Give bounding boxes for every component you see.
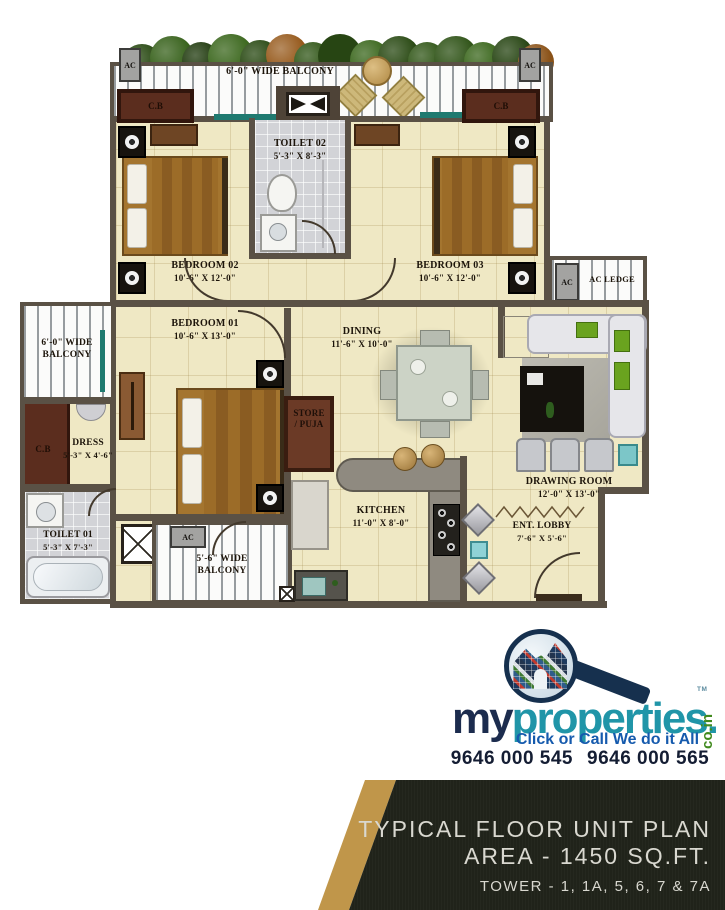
logo-magnifier-icon (440, 625, 725, 705)
floor-plan: 6'-0" WIDE BALCONY AC AC C.B C.B (0, 0, 725, 625)
speaker-icon (508, 126, 536, 158)
dresser-bedroom-02 (150, 124, 198, 146)
footer-title: TYPICAL FLOOR UNIT PLAN (358, 816, 711, 843)
washbasin-icon (26, 493, 64, 528)
footer-area: AREA - 1450 SQ.FT. (358, 843, 711, 870)
bed-bedroom-03 (432, 156, 538, 256)
kitchen-sink-unit (294, 570, 348, 601)
phone-number-1: 9646 000 545 (451, 748, 573, 769)
shaft-x (121, 524, 155, 564)
bar-stool (421, 444, 445, 468)
brand-phones: 9646 000 5459646 000 565 (448, 748, 712, 770)
ac-unit-bottom: AC (170, 526, 206, 548)
balcony-top-label: 6'-0" WIDE BALCONY (200, 66, 360, 79)
cushion (614, 330, 630, 352)
room-label-bedroom-03: BEDROOM 0310'-6" X 12'-0" (390, 260, 510, 284)
speaker-icon (256, 360, 284, 388)
speaker-icon (508, 262, 536, 294)
bed-bedroom-02 (122, 156, 228, 256)
footer-band: TYPICAL FLOOR UNIT PLAN AREA - 1450 SQ.F… (0, 780, 725, 910)
brand-block: myproperties. TM co.in Click or Call We … (440, 625, 725, 780)
cushion (576, 322, 598, 338)
center-table (520, 366, 584, 432)
balcony-bottom-label: 5'-6" WIDEBALCONY (168, 554, 276, 578)
room-label-drawing: DRAWING ROOM12'-0" X 13'-0" (515, 476, 623, 500)
wc-icon (267, 174, 297, 212)
recliner-row (516, 438, 618, 474)
ac-unit-ledge: AC (555, 263, 579, 301)
cupboard-dress-label: C.B (26, 444, 60, 455)
dining-set (370, 326, 492, 440)
phone-number-2: 9646 000 565 (587, 748, 709, 769)
window-sill (100, 330, 105, 392)
ac-unit-top-left: AC (119, 48, 141, 82)
cupboard-top-right: C.B (462, 89, 540, 123)
brand-tm: TM (697, 686, 707, 693)
speaker-icon (118, 126, 146, 158)
shaft-x-small (279, 586, 295, 602)
entrance-threshold (536, 594, 582, 601)
bathtub-icon (26, 556, 110, 598)
room-label-store: STORE/ PUJA (284, 408, 334, 431)
room-label-kitchen: KITCHEN11'-0" X 8'-0" (338, 505, 424, 529)
floor-plan-flyer: 6'-0" WIDE BALCONY AC AC C.B C.B (0, 0, 725, 910)
room-label-toilet-02: TOILET 025'-3" X 8'-3" (256, 138, 344, 162)
dresser-bedroom-03 (354, 124, 400, 146)
speaker-icon (256, 484, 284, 512)
washbasin-icon (260, 214, 297, 252)
balcony-table (362, 56, 392, 86)
ac-unit-top-right: AC (519, 48, 541, 82)
room-label-lobby: ENT. LOBBY7'-6" X 5'-6" (502, 521, 582, 544)
bar-stool (393, 447, 417, 471)
duct-bowtie (286, 92, 330, 116)
brand-my: my (452, 694, 512, 743)
room-label-dress: DRESS5'-3" X 4'-6" (60, 438, 116, 461)
brand-tagline: Click or Call We do it All (505, 731, 710, 749)
cushion (614, 362, 630, 390)
room-label-toilet-01: TOILET 015'-3" X 7'-3" (28, 530, 108, 553)
lobby-zigzag (494, 504, 586, 520)
balcony-left-label: 6'-0" WIDEBALCONY (26, 338, 108, 362)
fridge-icon (291, 480, 329, 550)
side-table-teal (618, 444, 638, 466)
ac-ledge-label: AC LEDGE (580, 274, 644, 285)
footer-towers: TOWER - 1, 1A, 5, 6, 7 & 7A (358, 878, 711, 895)
cupboard-top-left: C.B (117, 89, 194, 123)
wardrobe-bedroom-01 (119, 372, 145, 440)
footer-text: TYPICAL FLOOR UNIT PLAN AREA - 1450 SQ.F… (358, 816, 711, 895)
speaker-icon (118, 262, 146, 294)
bowtie-icon (289, 95, 327, 113)
stove-icon (433, 504, 460, 556)
lobby-teal-tile (470, 541, 488, 559)
